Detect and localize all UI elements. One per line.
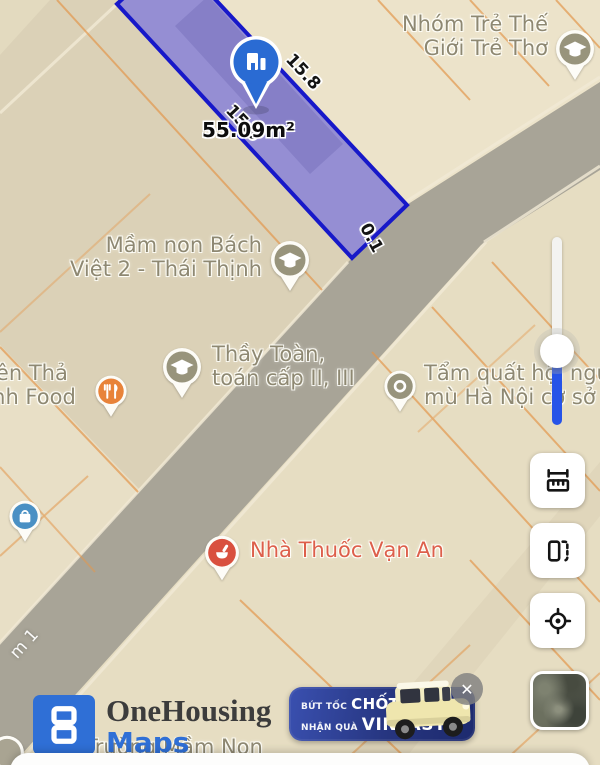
parcel-area-label: 55.09m² (202, 118, 295, 142)
map-screen: m 1 15.8 15.9 0.1 55.09m² Nhóm Trẻ Thế G… (0, 0, 600, 765)
bottom-sheet-handle[interactable] (10, 753, 590, 765)
parcel-marker-pin[interactable] (224, 32, 288, 116)
onehousing-maps-logo: OneHousing Maps (33, 695, 271, 757)
crosshair-icon (544, 607, 572, 635)
graduation-cap-icon[interactable] (159, 346, 205, 402)
ad-close-button[interactable]: ✕ (451, 673, 483, 705)
graduation-cap-icon[interactable] (552, 28, 598, 84)
restaurant-icon[interactable] (92, 374, 130, 420)
ad-tagline-2: NHẬN QUÀ (301, 723, 358, 733)
ruler-icon (544, 467, 572, 495)
poi-label-nhom-tre[interactable]: Nhóm Trẻ Thế Giới Trẻ Thơ (380, 13, 548, 61)
onehousing-logo-icon (33, 695, 95, 755)
ad-tagline-1: BỨT TỐC (301, 702, 347, 712)
poi-label-pharmacy[interactable]: Nhà Thuốc Vạn An (250, 539, 444, 563)
compare-layers-button[interactable] (530, 523, 585, 578)
shopping-bag-icon[interactable] (6, 499, 44, 545)
locate-button[interactable] (530, 593, 585, 648)
measure-button[interactable] (530, 453, 585, 508)
pharmacy-icon[interactable] (201, 534, 243, 584)
logo-title: OneHousing (106, 695, 271, 726)
poi-label-minh-food[interactable]: Viên Thả Minh Food (0, 362, 92, 410)
zoom-slider-thumb[interactable] (540, 334, 574, 368)
poi-label-thay-toan[interactable]: Thầy Toàn, toán cấp II, III (212, 343, 355, 391)
dot-icon[interactable] (381, 369, 419, 415)
satellite-view-thumbnail[interactable] (530, 671, 589, 730)
poi-label-tam-quat[interactable]: Tẩm quất hội người mù Hà Nội cơ sở 2 (424, 362, 600, 410)
poi-label-mam-non[interactable]: Mầm non Bách Việt 2 - Thái Thịnh (70, 234, 262, 282)
graduation-cap-icon[interactable] (267, 239, 313, 295)
split-view-icon (544, 537, 572, 565)
